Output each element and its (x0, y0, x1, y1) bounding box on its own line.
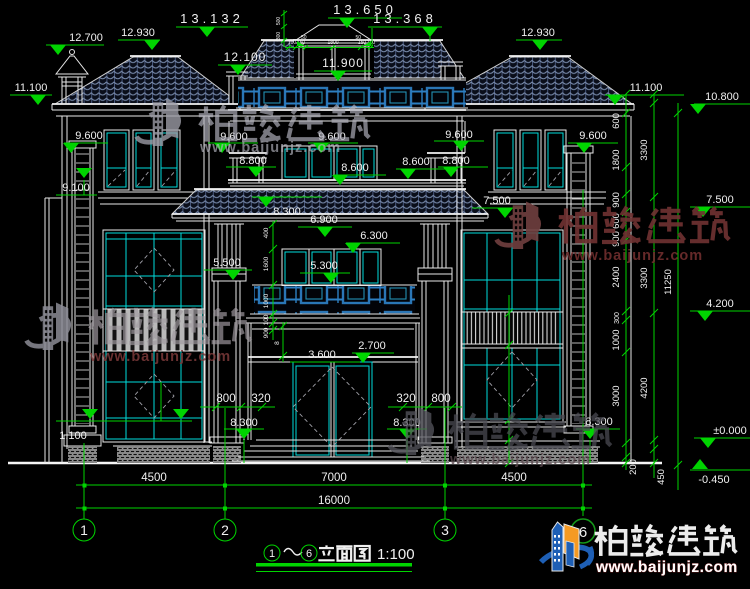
svg-text:8: 8 (274, 341, 281, 345)
svg-text:3300: 3300 (639, 139, 650, 160)
svg-text:12.100: 12.100 (224, 50, 267, 64)
svg-text:7.500: 7.500 (483, 195, 511, 207)
svg-text:www.baijunjz.com: www.baijunjz.com (89, 349, 231, 365)
svg-text:3: 3 (441, 522, 449, 538)
svg-text:13.368: 13.368 (373, 11, 437, 26)
svg-text:2: 2 (221, 522, 229, 538)
svg-text:900: 900 (611, 192, 622, 208)
svg-text:12.930: 12.930 (521, 27, 555, 39)
svg-text:500: 500 (276, 17, 282, 26)
svg-text:6: 6 (579, 524, 587, 541)
svg-text:300: 300 (614, 312, 621, 324)
svg-text:8.800: 8.800 (239, 155, 267, 167)
svg-text:www.baijunjz.com: www.baijunjz.com (561, 248, 703, 264)
svg-text:8.800: 8.800 (442, 155, 470, 167)
svg-text:11.100: 11.100 (15, 82, 48, 94)
svg-text:4500: 4500 (501, 472, 527, 484)
svg-text:2.700: 2.700 (358, 340, 386, 352)
svg-text:200: 200 (628, 459, 639, 475)
svg-text:320: 320 (396, 393, 415, 405)
svg-text:-0.450: -0.450 (698, 474, 729, 486)
svg-text:9.100: 9.100 (62, 182, 90, 194)
svg-text:5.300: 5.300 (310, 260, 338, 272)
svg-text:450: 450 (656, 469, 667, 485)
svg-text:7000: 7000 (321, 472, 347, 484)
svg-text:900: 900 (263, 327, 270, 338)
svg-text:www.baijunjz.com: www.baijunjz.com (449, 452, 591, 468)
svg-text:9.600: 9.600 (579, 130, 607, 142)
svg-text:4200: 4200 (639, 377, 650, 398)
svg-text:100: 100 (263, 314, 270, 325)
svg-text:400: 400 (263, 227, 270, 238)
svg-text:6: 6 (306, 548, 312, 560)
svg-text:800: 800 (216, 393, 235, 405)
svg-text:13.132: 13.132 (180, 11, 244, 26)
svg-text:9.600: 9.600 (445, 129, 473, 141)
svg-text:11.100: 11.100 (630, 82, 663, 94)
svg-text:7.500: 7.500 (706, 194, 734, 206)
svg-text:1800: 1800 (611, 149, 622, 170)
svg-text:3.600: 3.600 (308, 349, 336, 361)
svg-text:www.baijunjz.com: www.baijunjz.com (199, 140, 341, 156)
svg-text:50: 50 (301, 35, 307, 41)
svg-text:8.300: 8.300 (230, 417, 258, 429)
svg-text:900: 900 (611, 231, 622, 247)
svg-text:±0.000: ±0.000 (713, 425, 747, 437)
svg-text:www.baijunjz.com: www.baijunjz.com (595, 559, 738, 576)
svg-text:8.300: 8.300 (273, 206, 301, 218)
svg-text:6.900: 6.900 (310, 214, 338, 226)
svg-text:16000: 16000 (318, 495, 350, 507)
svg-text:50: 50 (355, 35, 361, 41)
svg-text:10.800: 10.800 (705, 91, 739, 103)
svg-text:6.300: 6.300 (360, 230, 388, 242)
svg-text:9.600: 9.600 (75, 130, 103, 142)
svg-text:4500: 4500 (141, 472, 167, 484)
svg-text:600: 600 (611, 113, 622, 129)
svg-text:3000: 3000 (611, 385, 622, 406)
svg-text:2400: 2400 (611, 266, 622, 287)
svg-text:1800: 1800 (327, 40, 338, 46)
svg-text:8.600: 8.600 (402, 156, 430, 168)
svg-text:3300: 3300 (639, 267, 650, 288)
svg-text:300: 300 (276, 32, 282, 41)
svg-text:100: 100 (288, 40, 297, 46)
svg-text:800: 800 (431, 393, 450, 405)
svg-text:1.100: 1.100 (59, 430, 87, 442)
svg-text:12.700: 12.700 (69, 32, 103, 44)
svg-text:8.600: 8.600 (341, 162, 369, 174)
svg-text:1600: 1600 (263, 256, 270, 271)
svg-text:1000: 1000 (611, 329, 622, 350)
svg-text:11250: 11250 (663, 269, 674, 295)
svg-text:1: 1 (80, 522, 88, 538)
svg-text:320: 320 (251, 393, 270, 405)
svg-text:4.200: 4.200 (706, 298, 734, 310)
svg-text:1000: 1000 (263, 293, 270, 308)
svg-text:1:100: 1:100 (377, 546, 415, 563)
svg-text:1: 1 (269, 548, 275, 560)
svg-text:12.930: 12.930 (121, 27, 155, 39)
svg-text:11.900: 11.900 (322, 56, 364, 70)
svg-text:5.500: 5.500 (213, 257, 241, 269)
